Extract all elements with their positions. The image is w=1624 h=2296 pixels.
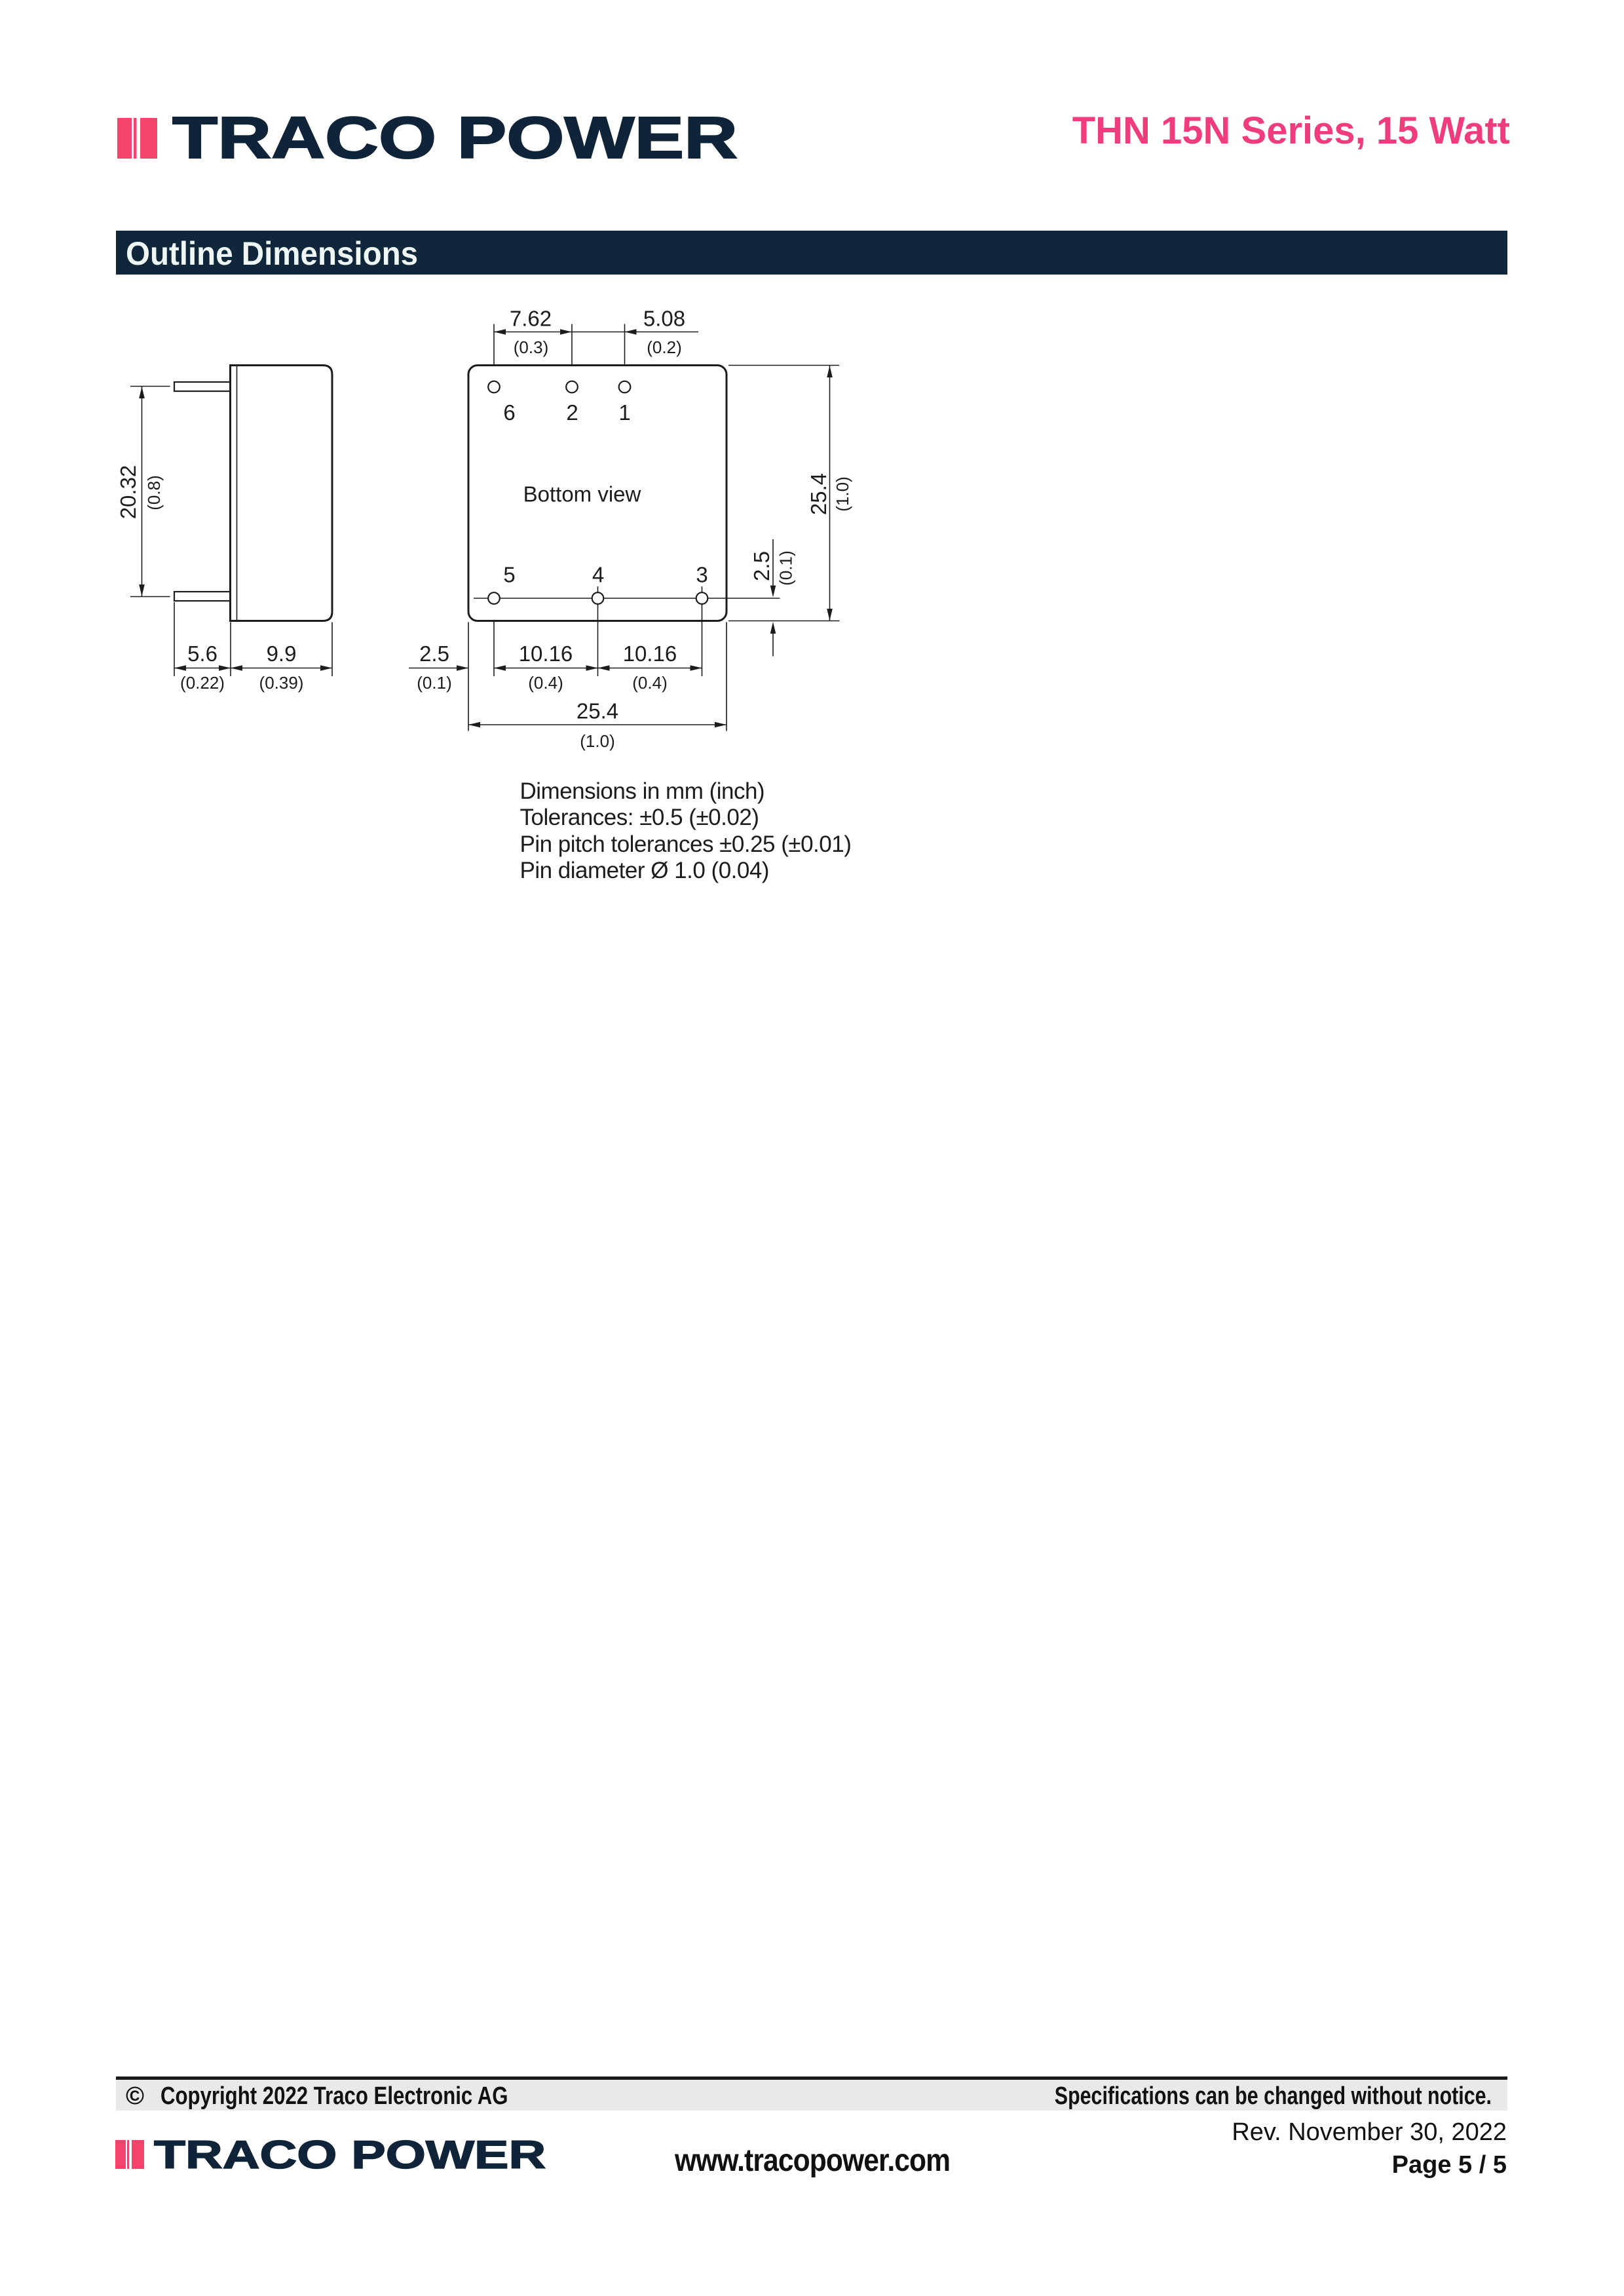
svg-text:(0.22): (0.22) bbox=[180, 673, 225, 693]
svg-text:25.4: 25.4 bbox=[576, 699, 618, 723]
svg-text:(1.0): (1.0) bbox=[833, 476, 852, 511]
svg-text:(0.1): (0.1) bbox=[776, 550, 796, 585]
svg-text:(0.4): (0.4) bbox=[528, 673, 563, 693]
svg-text:10.16: 10.16 bbox=[519, 641, 573, 666]
svg-text:1: 1 bbox=[618, 400, 630, 425]
svg-text:6: 6 bbox=[503, 400, 515, 425]
svg-text:25.4: 25.4 bbox=[806, 473, 831, 515]
svg-text:7.62: 7.62 bbox=[510, 307, 552, 331]
svg-text:20.32: 20.32 bbox=[116, 465, 140, 520]
svg-text:5.08: 5.08 bbox=[643, 307, 685, 331]
svg-text:3: 3 bbox=[696, 563, 708, 587]
svg-text:2: 2 bbox=[566, 400, 578, 425]
svg-text:4: 4 bbox=[592, 563, 604, 587]
svg-text:(0.4): (0.4) bbox=[632, 673, 667, 693]
svg-text:(0.39): (0.39) bbox=[259, 673, 304, 693]
svg-text:9.9: 9.9 bbox=[267, 641, 297, 666]
svg-text:(0.1): (0.1) bbox=[417, 673, 451, 693]
svg-text:2.5: 2.5 bbox=[749, 551, 774, 581]
svg-text:10.16: 10.16 bbox=[623, 641, 677, 666]
svg-text:(1.0): (1.0) bbox=[580, 731, 614, 751]
svg-text:5.6: 5.6 bbox=[187, 641, 217, 666]
svg-text:Bottom view: Bottom view bbox=[523, 482, 641, 507]
svg-text:(0.2): (0.2) bbox=[647, 337, 681, 357]
svg-text:5: 5 bbox=[503, 563, 515, 587]
svg-text:2.5: 2.5 bbox=[419, 641, 449, 666]
svg-text:(0.3): (0.3) bbox=[514, 337, 548, 357]
svg-text:(0.8): (0.8) bbox=[144, 475, 164, 510]
